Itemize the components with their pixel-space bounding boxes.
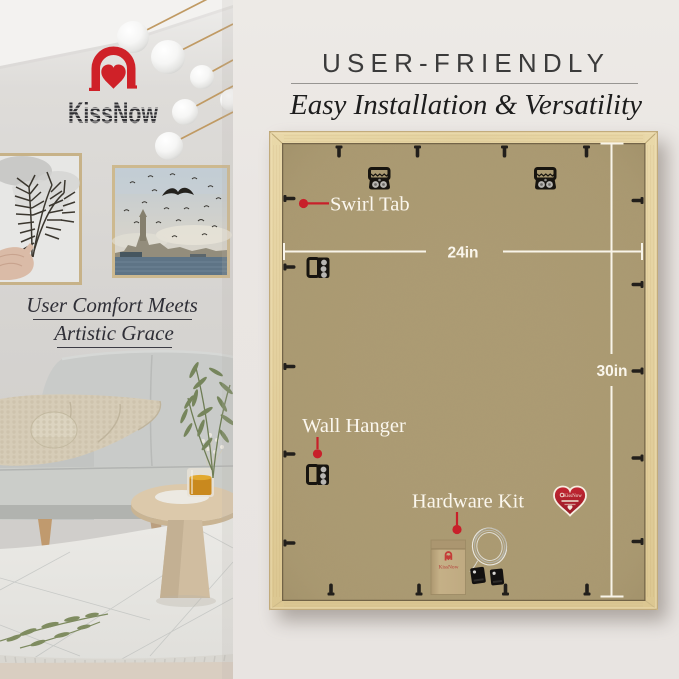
svg-text:24in: 24in <box>447 245 478 262</box>
svg-text:KissNow: KissNow <box>438 565 458 571</box>
svg-text:Artistic Grace: Artistic Grace <box>52 321 174 345</box>
svg-text:Hardware Kit: Hardware Kit <box>412 491 524 513</box>
svg-text:30in: 30in <box>596 363 627 380</box>
svg-text:Wall Hanger: Wall Hanger <box>302 415 406 437</box>
svg-text:KissNow: KissNow <box>68 97 158 130</box>
svg-text:KissNow: KissNow <box>563 494 582 499</box>
svg-text:Swirl Tab: Swirl Tab <box>330 194 410 216</box>
svg-text:User Comfort Meets: User Comfort Meets <box>26 293 198 317</box>
